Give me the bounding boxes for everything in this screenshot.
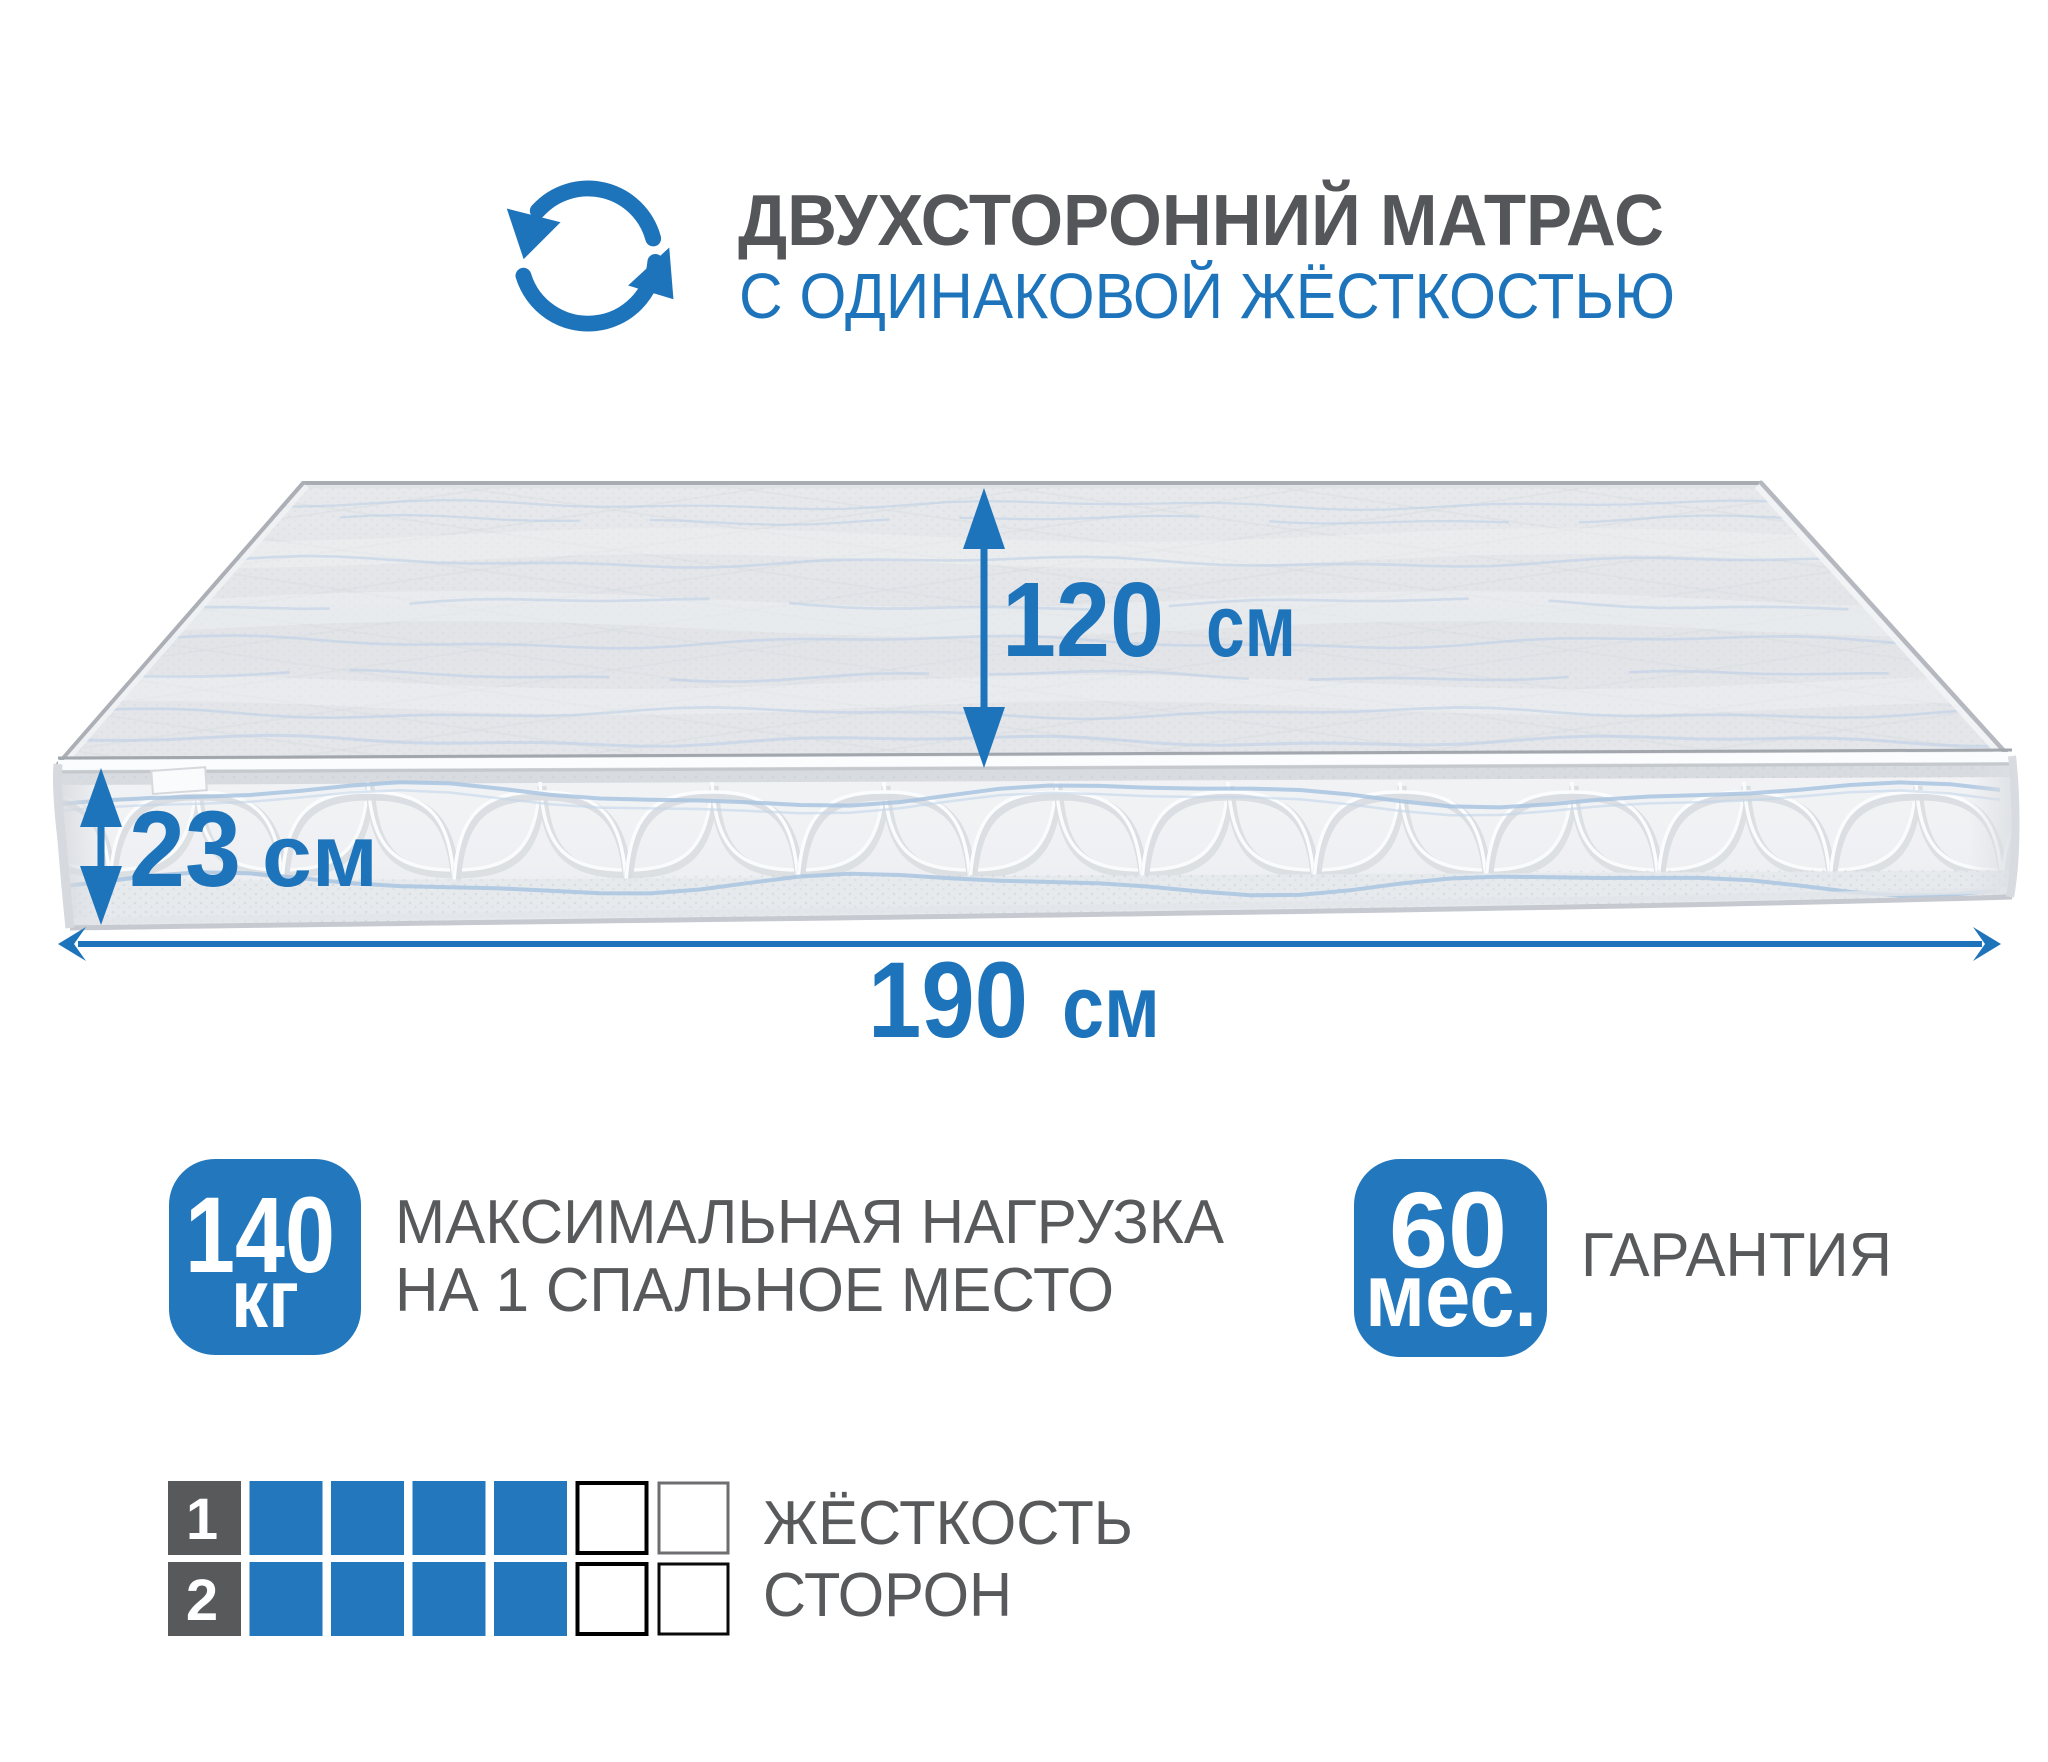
svg-text:ЖЁСТКОСТЬ: ЖЁСТКОСТЬ [763,1489,1133,1558]
svg-text:см: см [1206,576,1296,675]
svg-text:120: 120 [1002,561,1164,679]
svg-text:СТОРОН: СТОРОН [763,1561,1012,1630]
svg-text:С ОДИНАКОВОЙ ЖЁСТКОСТЬЮ: С ОДИНАКОВОЙ ЖЁСТКОСТЬЮ [739,259,1675,332]
svg-text:мес.: мес. [1365,1246,1537,1346]
svg-text:см: см [262,806,378,905]
svg-text:23: 23 [129,788,241,909]
svg-text:МАКСИМАЛЬНАЯ НАГРУЗКА: МАКСИМАЛЬНАЯ НАГРУЗКА [395,1188,1225,1257]
svg-text:2: 2 [186,1568,218,1633]
svg-text:1: 1 [186,1487,218,1552]
svg-text:ГАРАНТИЯ: ГАРАНТИЯ [1581,1221,1892,1290]
svg-text:190: 190 [868,939,1028,1060]
svg-text:НА 1 СПАЛЬНОЕ МЕСТО: НА 1 СПАЛЬНОЕ МЕСТО [395,1256,1114,1325]
svg-text:кг: кг [231,1252,299,1345]
svg-text:см: см [1062,957,1160,1056]
svg-text:ДВУХСТОРОННИЙ МАТРАС: ДВУХСТОРОННИЙ МАТРАС [738,179,1664,261]
